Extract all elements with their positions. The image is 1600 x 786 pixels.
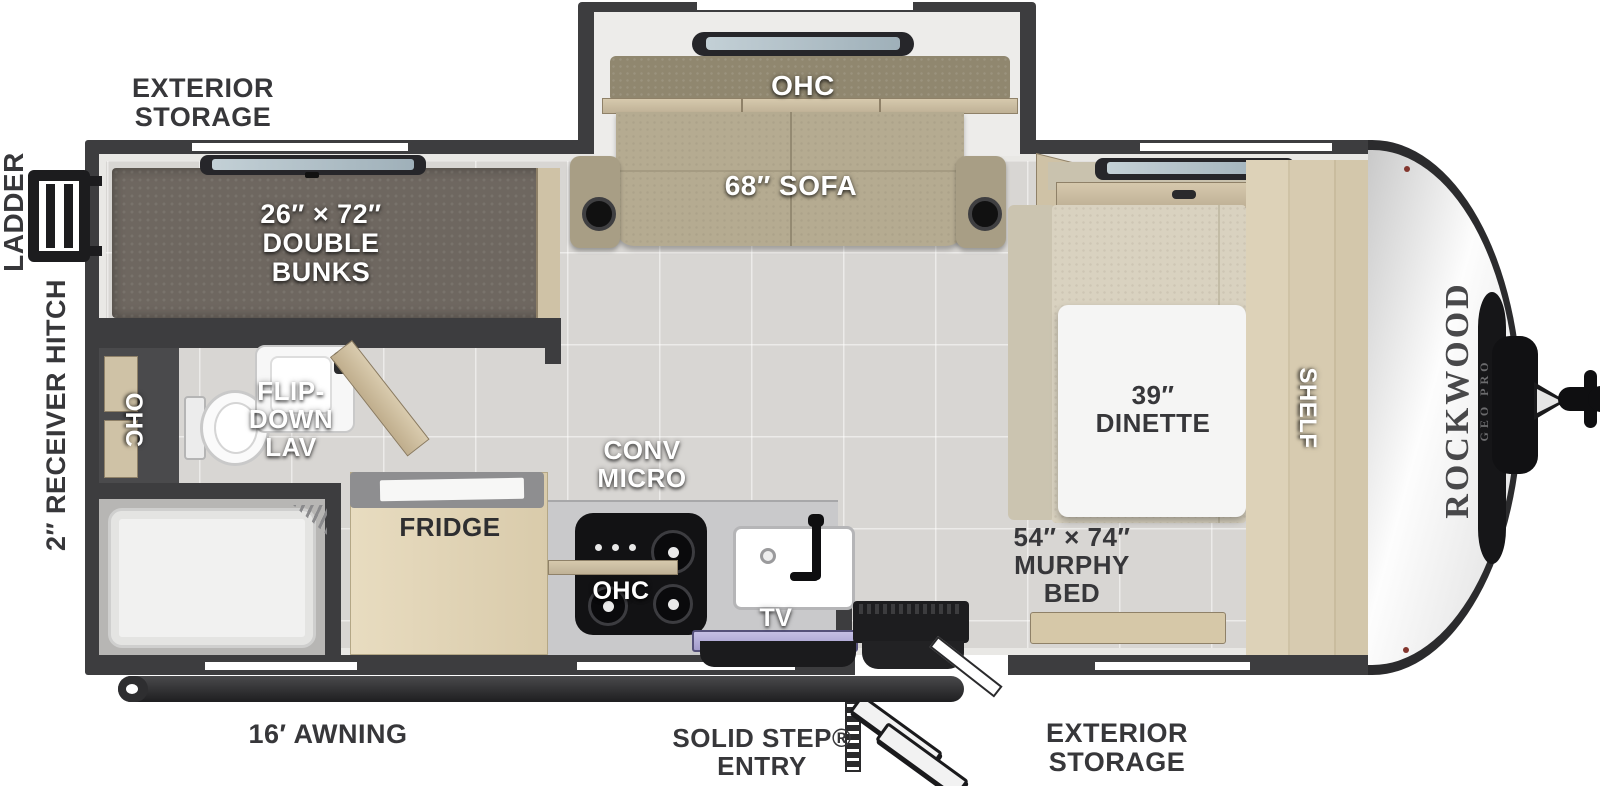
label-slide-ohc: OHC xyxy=(743,71,863,101)
label-sofa: 68″ SOFA xyxy=(691,171,891,201)
bunk-window-latch xyxy=(305,172,319,178)
murphy-bed-base xyxy=(1030,612,1226,644)
ladder-icon xyxy=(28,170,90,262)
label-fridge: FRIDGE xyxy=(370,514,530,542)
bunk-exterior-window-slit xyxy=(192,143,408,151)
marker-light xyxy=(1404,166,1410,172)
faucet-spout xyxy=(790,572,819,581)
cupholder-icon xyxy=(582,197,616,231)
fridge-top-sheet xyxy=(380,478,524,502)
label-double-bunks: 26″ × 72″ DOUBLE BUNKS xyxy=(211,200,431,287)
bunk-wood-edge xyxy=(536,168,560,318)
counter-tray xyxy=(700,641,856,667)
brand-logo: ROCKWOOD xyxy=(1438,260,1478,540)
label-murphy-bed: 54″ × 74″ MURPHY BED xyxy=(977,524,1167,607)
bunk-partition-wall xyxy=(85,318,561,348)
dinette-exterior-window-slit xyxy=(1140,143,1332,151)
bed-head-handle xyxy=(1172,190,1196,199)
ladder-bracket xyxy=(86,246,102,256)
faucet-base xyxy=(808,514,824,527)
label-conv-micro: CONV MICRO xyxy=(562,437,722,493)
slideout-window-slit xyxy=(697,2,913,10)
brand-sub-logo: GEO PRO xyxy=(1476,320,1492,480)
cooktop-knob xyxy=(629,544,636,551)
solid-step xyxy=(875,722,969,786)
sink-drain-icon xyxy=(760,548,776,564)
label-awning: 16′ AWNING xyxy=(218,720,438,749)
propane-cover xyxy=(1492,336,1538,474)
kitchen-sink xyxy=(733,526,855,610)
shower-exterior-window-slit xyxy=(205,662,357,670)
bathroom-wall xyxy=(545,318,561,364)
murphy-bed-backrest xyxy=(1008,205,1056,520)
label-exterior-storage-bottom: EXTERIOR STORAGE xyxy=(1007,719,1227,777)
ladder-bracket xyxy=(86,176,102,186)
label-shelf: SHELF xyxy=(1296,353,1320,463)
cooktop-knob xyxy=(595,544,602,551)
ladder-rung xyxy=(64,184,73,248)
awning-pin xyxy=(126,684,138,694)
label-tv: TV xyxy=(746,605,806,632)
marker-light xyxy=(1403,647,1409,653)
cooktop-knob xyxy=(612,544,619,551)
bed-exterior-window-slit xyxy=(1095,662,1250,670)
ladder-rung xyxy=(46,184,55,248)
shower-wall xyxy=(85,483,341,499)
bunk-window-glass xyxy=(212,159,414,170)
label-solid-step-entry: SOLID STEP® ENTRY xyxy=(642,725,882,781)
label-exterior-storage-top: EXTERIOR STORAGE xyxy=(93,74,313,132)
label-dinette: 39″ DINETTE xyxy=(1073,382,1233,438)
label-ladder: LADDER xyxy=(0,142,25,282)
shower-pan xyxy=(108,508,316,648)
kitchen-overhead-cabinet xyxy=(548,560,678,575)
furnace-unit xyxy=(853,601,969,643)
label-flip-down-lav: FLIP- DOWN LAV xyxy=(211,378,371,461)
label-kitchen-ohc: OHC xyxy=(571,578,671,605)
awning-roller xyxy=(118,676,964,702)
cupholder-icon xyxy=(968,197,1002,231)
floorplan-canvas: ROCKWOOD GEO PRO EXTERIOR STORAGE LADDER… xyxy=(0,0,1600,786)
label-bath-ohc: OHC xyxy=(122,375,146,465)
label-receiver-hitch: 2″ RECEIVER HITCH xyxy=(42,275,68,555)
slideout-window-glass xyxy=(706,37,900,50)
